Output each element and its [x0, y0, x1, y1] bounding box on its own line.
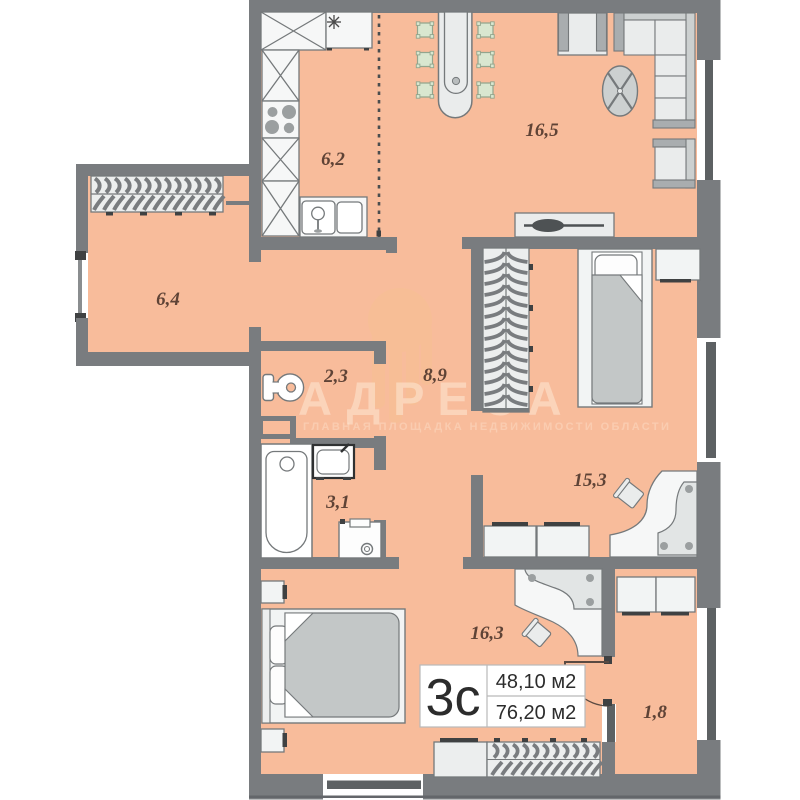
- svg-text:1,8: 1,8: [643, 702, 667, 723]
- svg-text:8,9: 8,9: [423, 365, 447, 386]
- svg-text:2,3: 2,3: [323, 366, 348, 387]
- svg-text:6,2: 6,2: [321, 149, 345, 170]
- svg-text:76,20 м2: 76,20 м2: [496, 702, 576, 724]
- svg-text:3,1: 3,1: [325, 492, 350, 513]
- svg-text:48,10 м2: 48,10 м2: [496, 671, 576, 693]
- svg-text:16,3: 16,3: [470, 623, 503, 644]
- svg-text:3с: 3с: [426, 669, 481, 727]
- svg-text:16,5: 16,5: [525, 120, 559, 141]
- svg-text:ГЛАВНАЯ ПЛОЩАДКА НЕДВИЖИМОСТИ: ГЛАВНАЯ ПЛОЩАДКА НЕДВИЖИМОСТИ ОБЛАСТИ: [303, 421, 671, 433]
- svg-text:6,4: 6,4: [156, 289, 180, 310]
- svg-text:15,3: 15,3: [573, 470, 606, 491]
